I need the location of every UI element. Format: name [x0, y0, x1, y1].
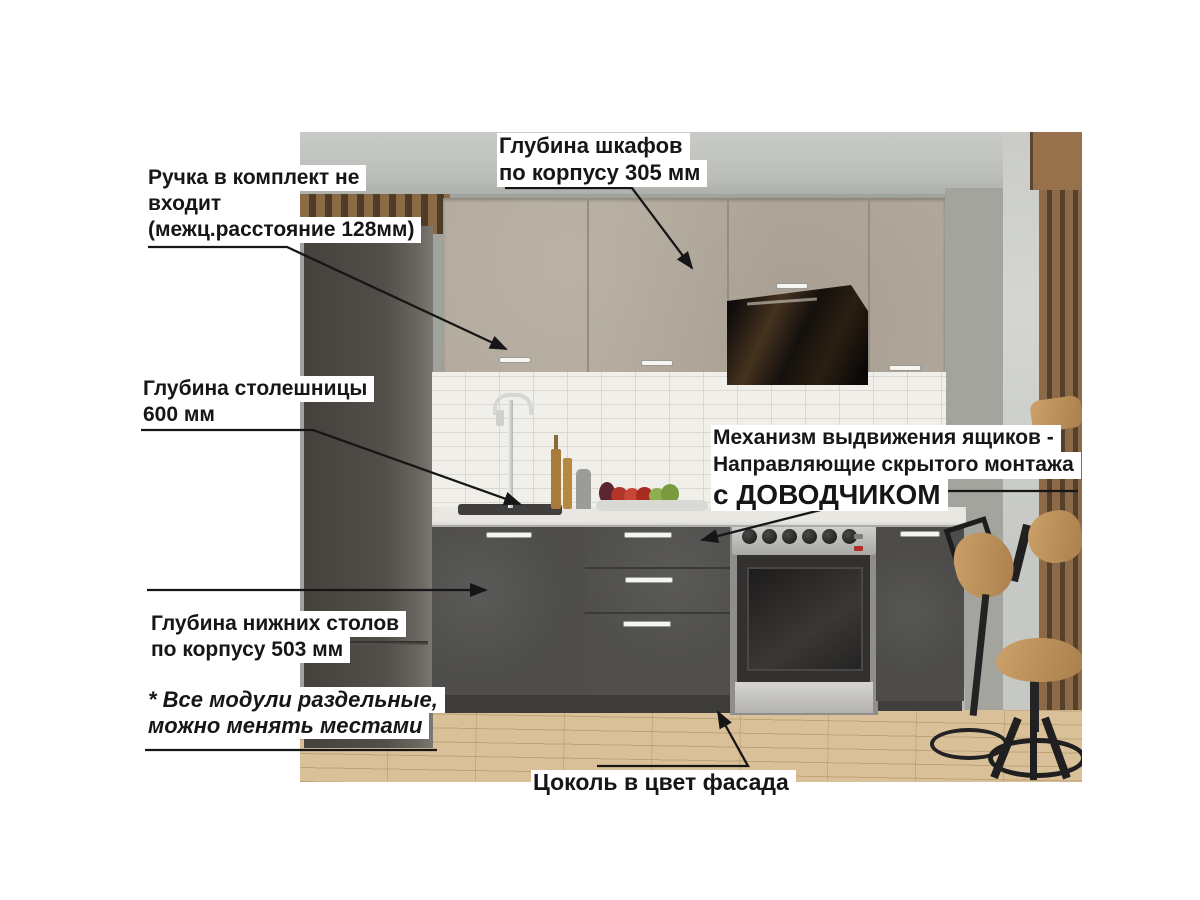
annotation-base-cabinet-depth: Глубина нижних столов по корпусу 503 мм: [149, 611, 406, 663]
annotation-line: входит: [146, 191, 228, 217]
plinth: [440, 695, 730, 713]
annotation-line: можно менять местами: [146, 713, 429, 739]
hood-cabinet-handle: [776, 283, 808, 289]
wood-board-top-right: [1030, 132, 1082, 190]
oil-bottle: [551, 449, 561, 509]
upper-door-handle: [641, 360, 673, 366]
drawer-handle: [623, 621, 671, 627]
stove-bottom-drawer: [735, 682, 873, 713]
upper-door-seam: [868, 198, 870, 376]
annotation-plinth-note: Цоколь в цвет фасада: [531, 770, 796, 796]
drawer-seam: [585, 567, 730, 569]
annotation-line: по корпусу 305 мм: [497, 160, 707, 187]
annotation-line: Направляющие скрытого монтажа: [711, 452, 1081, 479]
stove-button: [854, 534, 863, 539]
faucet-sprayer: [496, 410, 504, 426]
annotation-line: Глубина нижних столов: [149, 611, 406, 637]
fruit-tray: [596, 500, 708, 511]
annotation-line: Ручка в комплект не: [146, 165, 366, 191]
oven-glass: [747, 567, 863, 671]
annotation-line: Механизм выдвижения ящиков -: [711, 425, 1061, 452]
upper-door-handle: [889, 365, 921, 371]
base-door-handle: [900, 531, 940, 537]
drawer-seam: [585, 612, 730, 614]
annotation-line: Глубина шкафов: [497, 133, 690, 160]
stove-knob: [822, 529, 837, 544]
stove-knob: [742, 529, 757, 544]
annotation-line: с ДОВОДЧИКОМ: [711, 479, 948, 511]
annotation-upper-cabinet-depth: Глубина шкафов по корпусу 305 мм: [497, 133, 707, 187]
pepper-grinder: [576, 469, 591, 509]
base-door-handle: [486, 532, 532, 538]
stove-knob: [762, 529, 777, 544]
upper-door-seam: [587, 198, 589, 376]
annotation-drawer-mechanism: Механизм выдвижения ящиков - Направляющи…: [711, 425, 1081, 511]
stove-knob: [782, 529, 797, 544]
annotation-line: (межц.расстояние 128мм): [146, 217, 421, 243]
oven-door: [737, 555, 870, 682]
drawer-handle: [625, 577, 673, 583]
stove-button-red: [854, 546, 863, 551]
annotation-line: * Все модули раздельные,: [146, 687, 445, 713]
oil-bottle-small: [563, 458, 572, 509]
annotation-countertop-depth: Глубина столешницы 600 мм: [141, 376, 374, 428]
annotation-modules-note: * Все модули раздельные, можно менять ме…: [146, 687, 445, 739]
annotation-line: Цоколь в цвет фасада: [531, 770, 796, 796]
base-cabinet-left: [432, 525, 587, 697]
stool-footring: [988, 738, 1082, 778]
stove-knob: [802, 529, 817, 544]
stool-seat: [996, 638, 1082, 682]
drawer-stack: [585, 525, 730, 697]
kitchen-annotated-diagram: Ручка в комплект не входит (межц.расстоя…: [0, 0, 1200, 900]
annotation-line: Глубина столешницы: [141, 376, 374, 402]
stove: [730, 515, 878, 715]
drawer-handle: [624, 532, 672, 538]
annotation-handle-note: Ручка в комплект не входит (межц.расстоя…: [146, 165, 421, 243]
annotation-line: 600 мм: [141, 402, 222, 428]
faucet-stem: [508, 400, 513, 508]
tall-cabinet: [304, 226, 433, 748]
annotation-line: по корпусу 503 мм: [149, 637, 350, 663]
upper-door-handle: [499, 357, 531, 363]
upper-cabinets: [443, 198, 945, 380]
